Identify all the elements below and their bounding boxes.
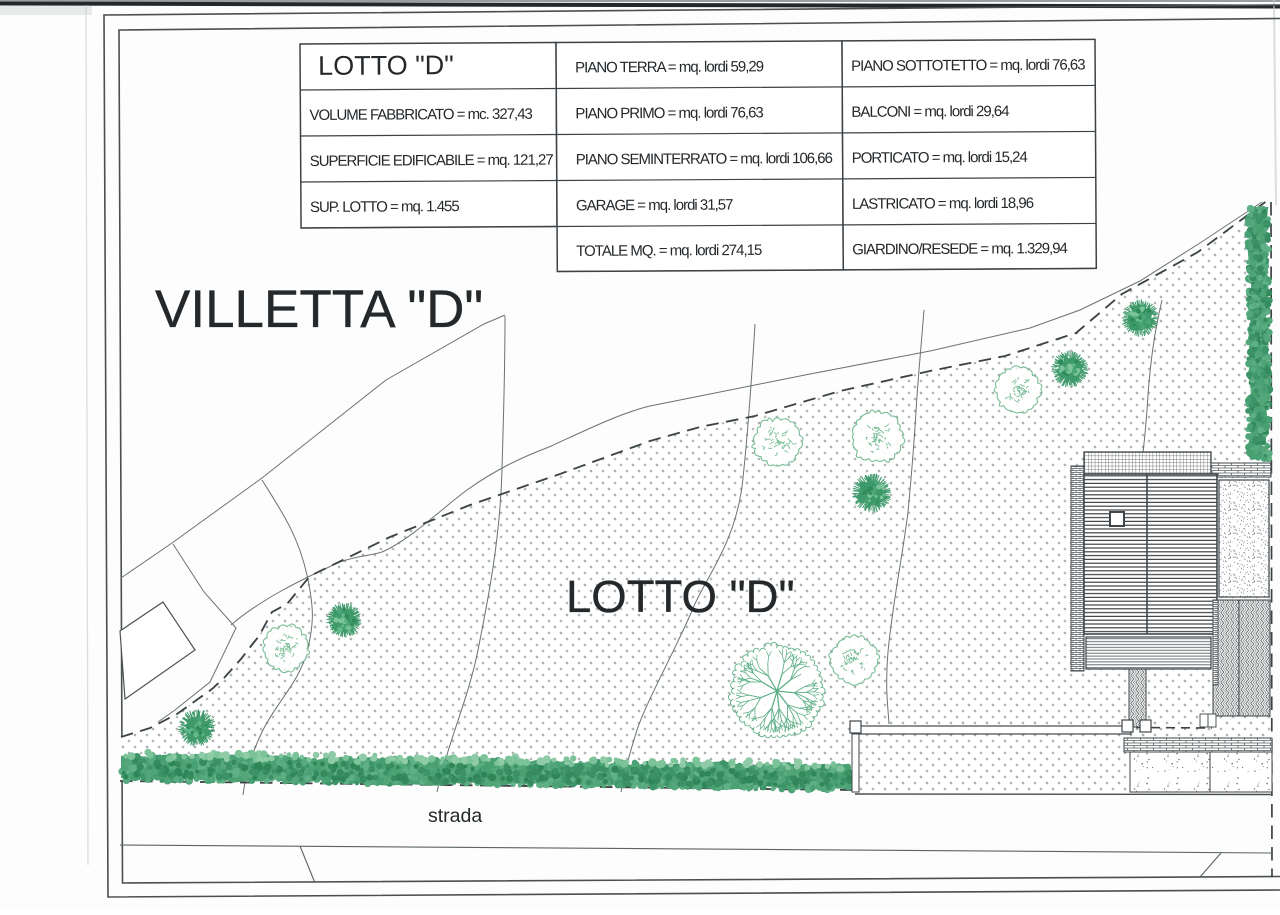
- svg-text:PIANO SEMINTERRATO = mq. lordi: PIANO SEMINTERRATO = mq. lordi 106,66: [576, 150, 833, 168]
- svg-text:PORTICATO = mq. lordi 15,24: PORTICATO = mq. lordi 15,24: [852, 149, 1028, 167]
- svg-text:PIANO PRIMO = mq. lordi 76,63: PIANO PRIMO = mq. lordi 76,63: [575, 104, 763, 122]
- svg-text:BALCONI = mq. lordi 29,64: BALCONI = mq. lordi 29,64: [851, 103, 1009, 121]
- svg-text:strada: strada: [428, 805, 482, 827]
- svg-text:VOLUME FABBRICATO = mc. 327,43: VOLUME FABBRICATO = mc. 327,43: [309, 106, 532, 124]
- svg-text:TOTALE MQ. = mq. lordi 274,15: TOTALE MQ. = mq. lordi 274,15: [576, 242, 762, 260]
- svg-text:LOTTO "D": LOTTO "D": [566, 571, 795, 622]
- svg-text:PIANO TERRA = mq. lordi 59,29: PIANO TERRA = mq. lordi 59,29: [575, 58, 764, 76]
- svg-text:SUP. LOTTO = mq. 1.455: SUP. LOTTO = mq. 1.455: [310, 198, 460, 216]
- svg-text:VILLETTA "D": VILLETTA "D": [155, 280, 483, 339]
- svg-text:GARAGE = mq. lordi 31,57: GARAGE = mq. lordi 31,57: [576, 197, 733, 215]
- svg-text:LASTRICATO = mq. lordi 18,96: LASTRICATO = mq. lordi 18,96: [852, 195, 1034, 213]
- svg-text:PIANO SOTTOTETTO = mq. lordi 7: PIANO SOTTOTETTO = mq. lordi 76,63: [851, 56, 1085, 74]
- svg-text:LOTTO "D": LOTTO "D": [318, 50, 454, 81]
- svg-text:SUPERFICIE EDIFICABILE = mq. 1: SUPERFICIE EDIFICABILE = mq. 121,27: [310, 152, 554, 170]
- svg-text:GIARDINO/RESEDE = mq. 1.329,94: GIARDINO/RESEDE = mq. 1.329,94: [852, 240, 1067, 258]
